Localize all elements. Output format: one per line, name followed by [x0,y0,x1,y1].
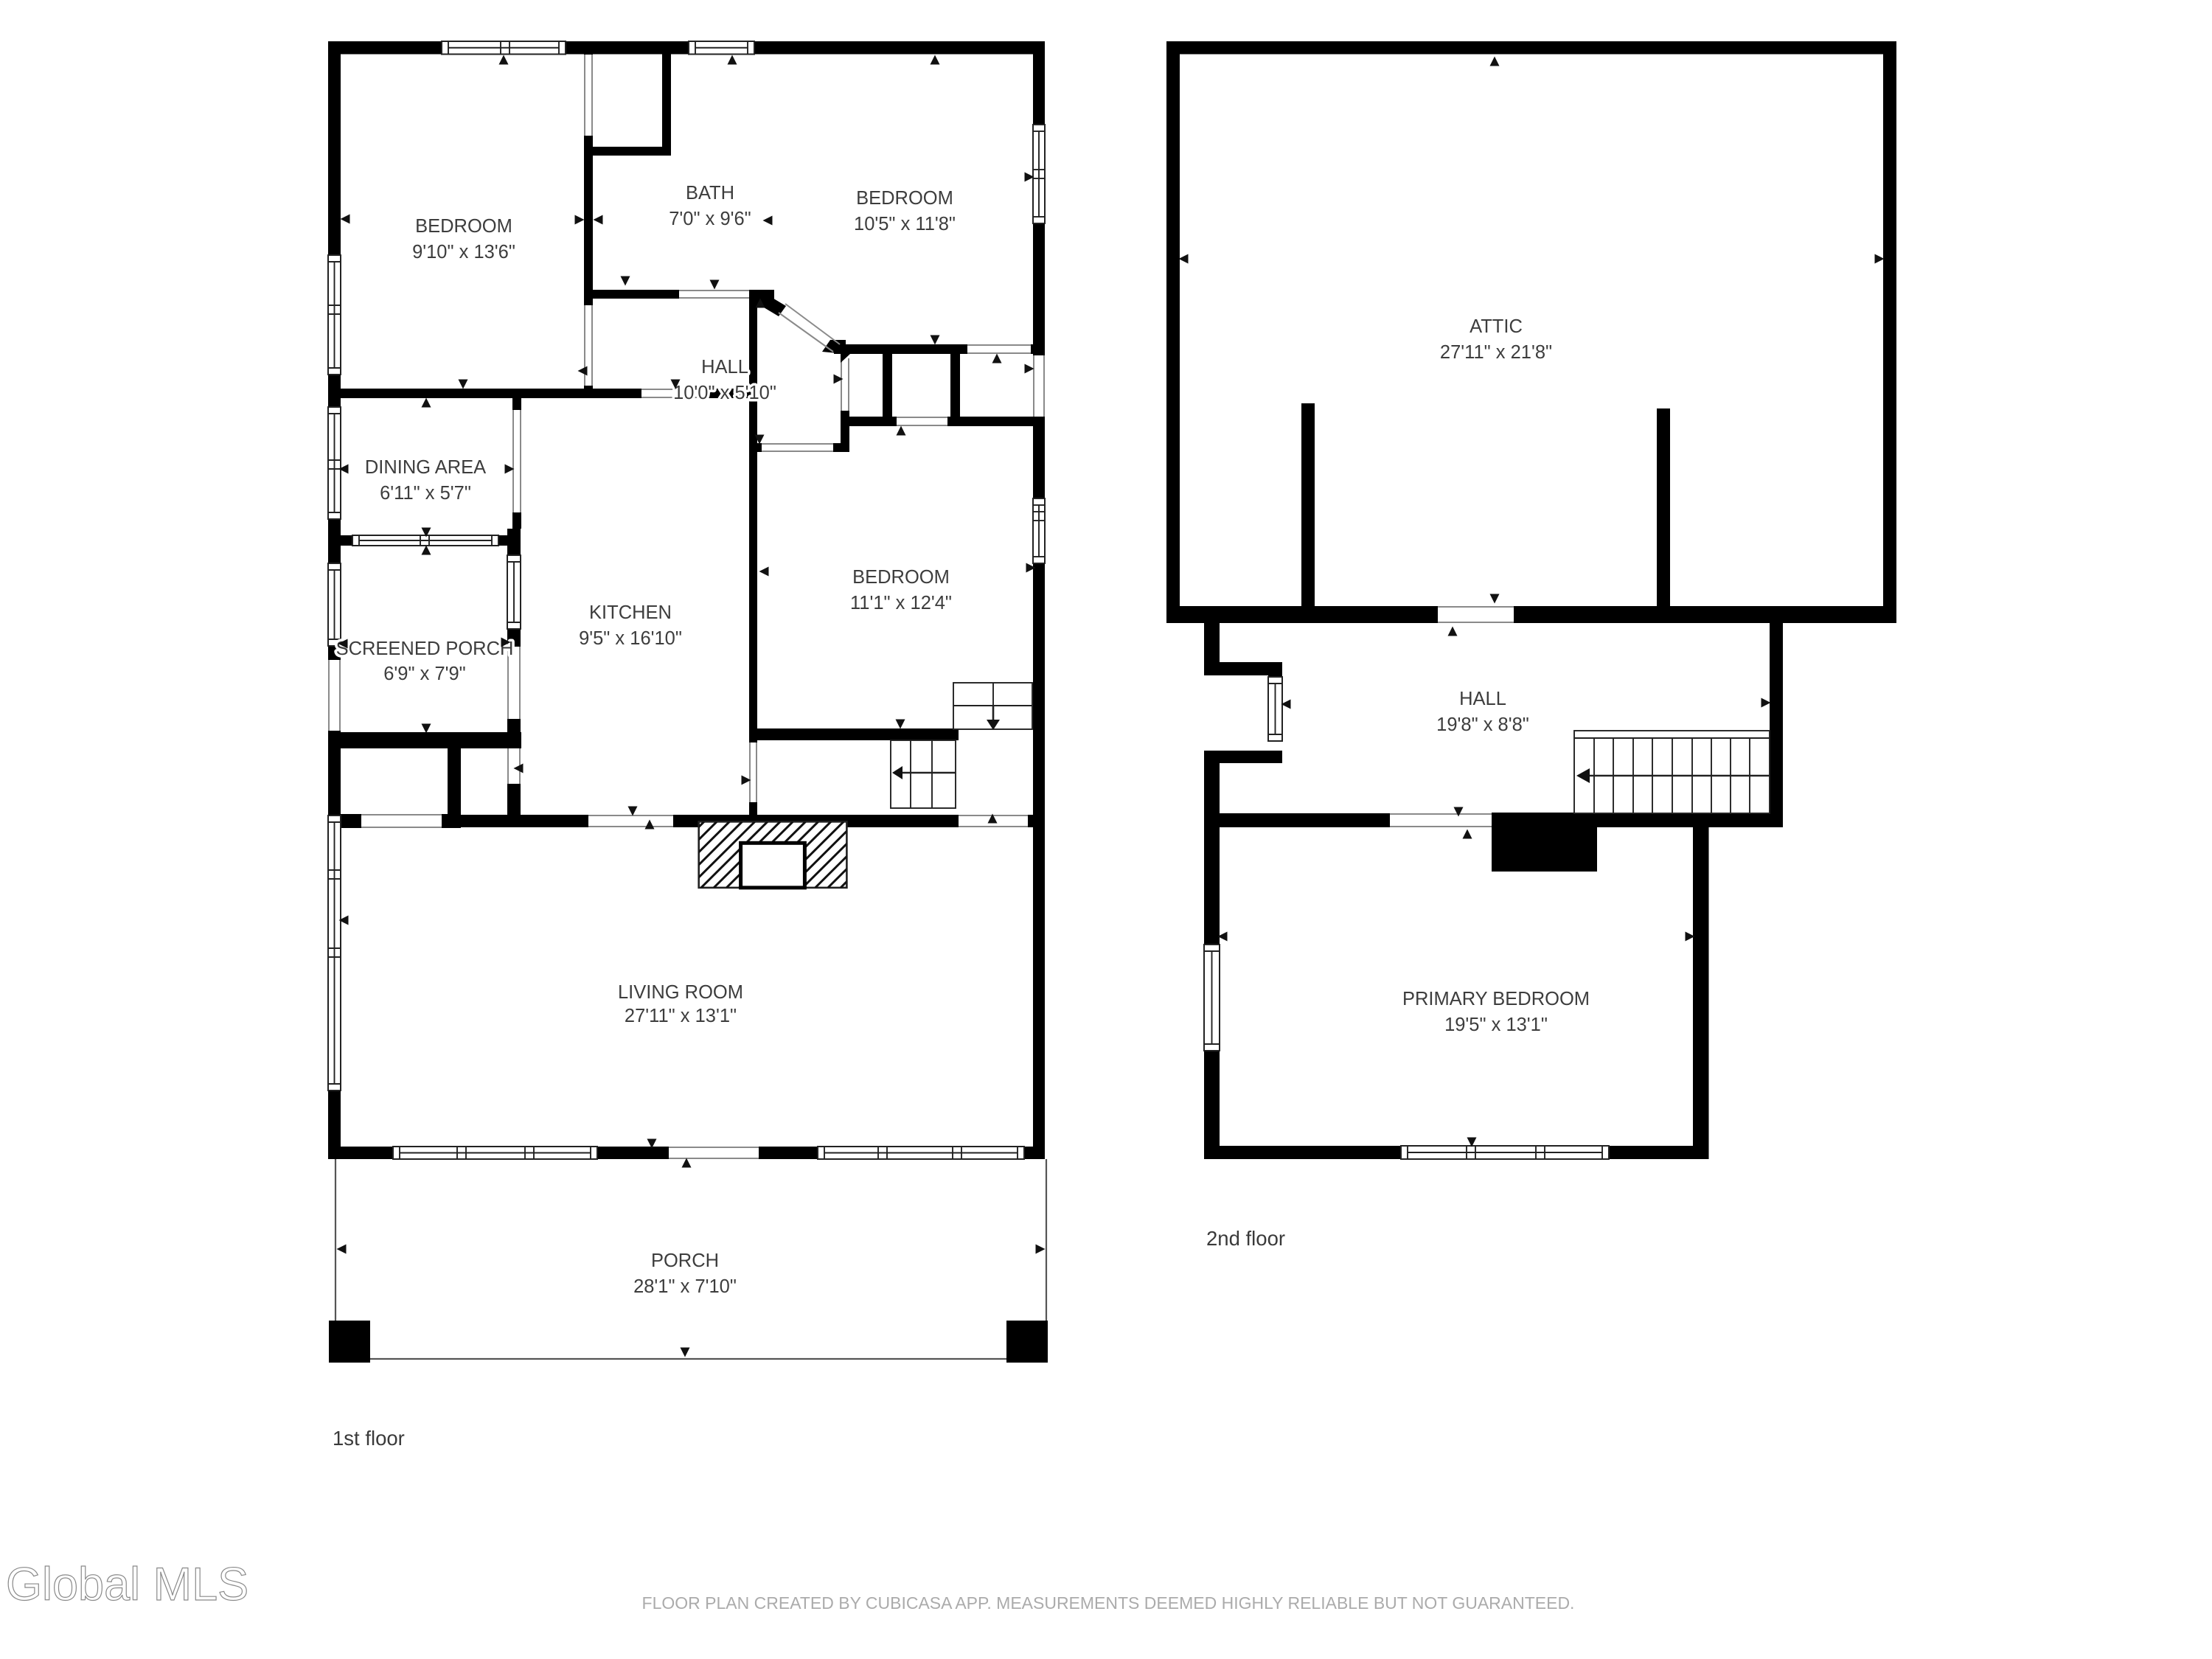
svg-text:6'11" x 5'7": 6'11" x 5'7" [380,483,471,504]
svg-text:PRIMARY BEDROOM: PRIMARY BEDROOM [1402,989,1590,1009]
svg-text:ATTIC: ATTIC [1470,316,1523,337]
svg-text:BATH: BATH [686,183,734,204]
svg-text:27'11" x 13'1": 27'11" x 13'1" [625,1006,737,1026]
svg-text:10'0" x 5'10": 10'0" x 5'10" [673,383,776,403]
svg-text:7'0" x 9'6": 7'0" x 9'6" [669,209,751,229]
svg-text:BEDROOM: BEDROOM [852,567,950,588]
svg-text:19'8" x 8'8": 19'8" x 8'8" [1436,714,1529,735]
svg-text:LIVING ROOM: LIVING ROOM [618,982,743,1003]
svg-text:BEDROOM: BEDROOM [415,216,512,237]
svg-text:6'9" x 7'9": 6'9" x 7'9" [383,664,466,684]
svg-text:Global MLS: Global MLS [6,1559,248,1610]
svg-text:1st floor: 1st floor [333,1427,405,1450]
svg-text:PORCH: PORCH [651,1251,719,1271]
svg-text:FLOOR PLAN CREATED BY CUBICASA: FLOOR PLAN CREATED BY CUBICASA APP. MEAS… [642,1593,1575,1613]
svg-text:HALL: HALL [1459,689,1506,709]
svg-text:27'11" x 21'8": 27'11" x 21'8" [1440,342,1552,363]
svg-text:DINING AREA: DINING AREA [365,457,486,478]
svg-text:11'1" x 12'4": 11'1" x 12'4" [850,593,952,613]
svg-text:10'5" x 11'8": 10'5" x 11'8" [854,214,956,234]
svg-text:HALL: HALL [701,357,748,378]
svg-text:KITCHEN: KITCHEN [589,602,672,623]
svg-text:28'1" x 7'10": 28'1" x 7'10" [633,1276,737,1297]
svg-text:BEDROOM: BEDROOM [856,188,953,209]
svg-text:2nd floor: 2nd floor [1206,1227,1285,1250]
svg-text:9'5" x 16'10": 9'5" x 16'10" [579,628,682,649]
svg-text:SCREENED PORCH: SCREENED PORCH [336,639,514,659]
svg-text:9'10" x 13'6": 9'10" x 13'6" [412,242,515,262]
svg-text:19'5" x 13'1": 19'5" x 13'1" [1444,1015,1548,1035]
